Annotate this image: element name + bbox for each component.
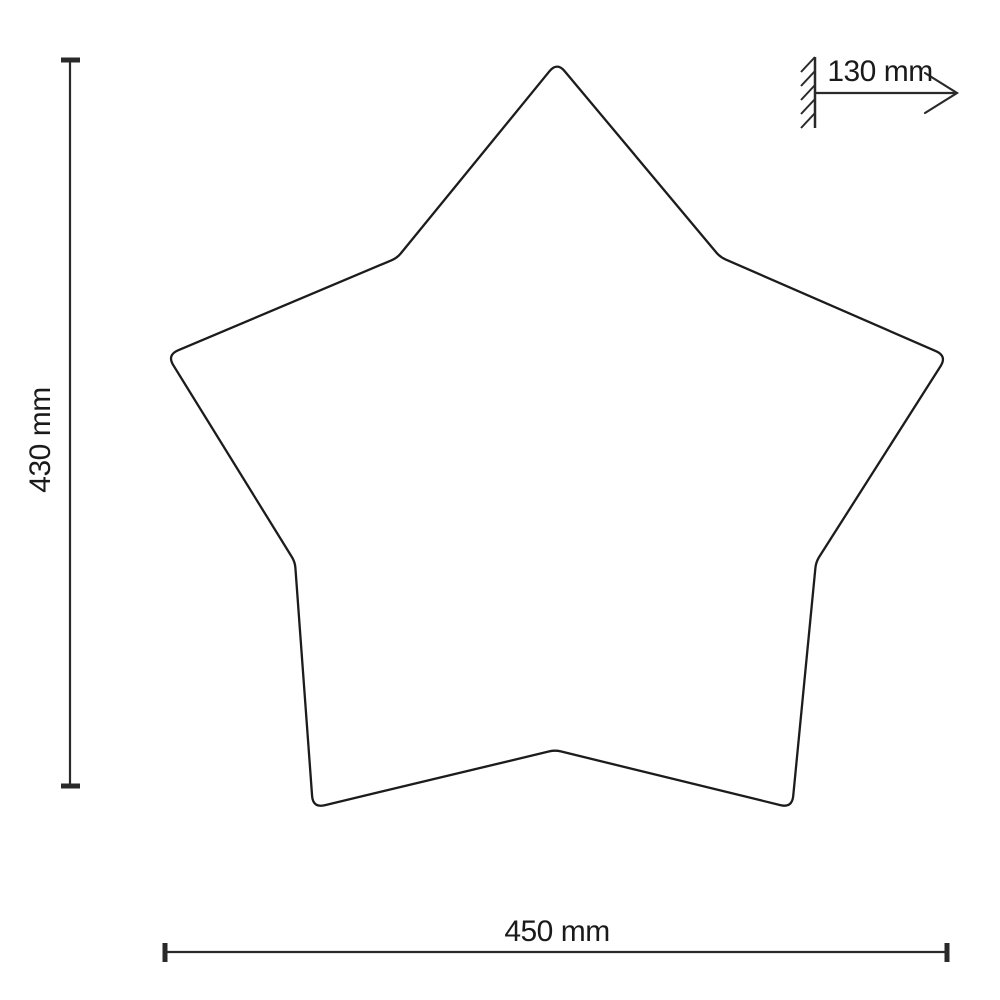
height-dimension-label: 430 mm (24, 387, 57, 492)
depth-dimension-label: 130 mm (827, 55, 932, 88)
wall-hatch-icon (801, 57, 815, 128)
width-dimension: 450 mm (165, 915, 947, 962)
width-dimension-label: 450 mm (504, 915, 609, 948)
depth-dimension: 130 mm (801, 55, 957, 128)
dimension-drawing-canvas: 430 mm 450 mm 130 mm (0, 0, 1000, 1000)
height-dimension: 430 mm (24, 60, 80, 786)
dimension-drawing: 430 mm 450 mm 130 mm (0, 0, 1000, 1000)
star-outline (171, 67, 943, 806)
